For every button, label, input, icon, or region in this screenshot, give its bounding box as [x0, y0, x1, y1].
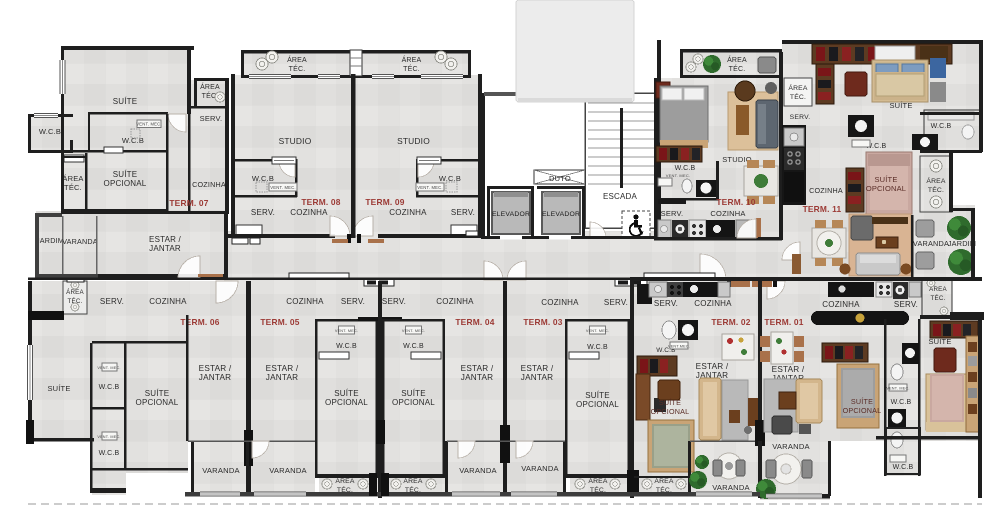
svg-text:SUÍTE: SUÍTE — [145, 389, 170, 398]
svg-text:ESTAR /: ESTAR / — [461, 364, 494, 373]
svg-text:SERV.: SERV. — [661, 209, 684, 218]
svg-text:VENT. MEC.: VENT. MEC. — [335, 329, 358, 333]
svg-text:W.C.B: W.C.B — [336, 343, 357, 350]
svg-text:W.C.B: W.C.B — [99, 384, 120, 391]
svg-text:DUTO: DUTO — [549, 174, 571, 183]
svg-text:VENT. MEC.: VENT. MEC. — [586, 329, 609, 333]
svg-text:TERM. 08: TERM. 08 — [301, 197, 340, 207]
svg-text:OPCIONAL: OPCIONAL — [104, 179, 147, 188]
svg-text:VENT. MEC.: VENT. MEC. — [402, 329, 425, 333]
svg-text:W.C.B: W.C.B — [99, 450, 120, 457]
svg-text:VENT. MEC.: VENT. MEC. — [97, 366, 120, 370]
svg-text:VARANDA: VARANDA — [772, 442, 810, 451]
svg-text:JANTAR: JANTAR — [521, 373, 553, 382]
svg-text:VARANDA: VARANDA — [269, 466, 307, 475]
svg-text:COZINHA: COZINHA — [694, 299, 732, 308]
svg-text:STUDIO: STUDIO — [279, 136, 312, 146]
svg-text:W.C.B: W.C.B — [931, 123, 952, 130]
svg-text:TERM. 02: TERM. 02 — [711, 317, 750, 327]
svg-text:OPCIONAL: OPCIONAL — [576, 400, 619, 409]
svg-text:ÁREA: ÁREA — [788, 83, 808, 92]
svg-text:TÉC.: TÉC. — [64, 183, 82, 192]
svg-text:TÉC.: TÉC. — [790, 92, 806, 101]
svg-text:ÁREA: ÁREA — [62, 174, 83, 183]
svg-text:COZINHA: COZINHA — [541, 298, 579, 307]
svg-text:ÁREA: ÁREA — [727, 55, 747, 64]
svg-text:COZINHA: COZINHA — [822, 300, 860, 309]
svg-text:ESTAR /: ESTAR / — [521, 364, 554, 373]
svg-text:OPCIONAL: OPCIONAL — [866, 184, 906, 193]
svg-text:ESTAR /: ESTAR / — [199, 364, 232, 373]
svg-text:TÉC.: TÉC. — [729, 64, 746, 73]
svg-text:TERM. 07: TERM. 07 — [169, 198, 208, 208]
svg-text:SUÍTE: SUÍTE — [113, 170, 138, 179]
svg-text:COZINHA: COZINHA — [149, 297, 187, 306]
svg-text:ÁREA: ÁREA — [926, 176, 946, 185]
svg-text:VENT. MEC.: VENT. MEC. — [270, 185, 296, 190]
svg-text:SERV.: SERV. — [382, 297, 406, 306]
svg-text:ÁREA: ÁREA — [402, 55, 422, 64]
svg-text:JANTAR: JANTAR — [461, 373, 493, 382]
svg-text:SERV.: SERV. — [451, 208, 475, 217]
svg-text:SERV.: SERV. — [341, 297, 365, 306]
svg-text:COZINHA: COZINHA — [389, 208, 427, 217]
svg-text:OPCIONAL: OPCIONAL — [843, 406, 882, 415]
svg-text:OPCIONAL: OPCIONAL — [651, 407, 690, 416]
svg-text:ÁREA: ÁREA — [200, 82, 220, 91]
svg-text:SUÍTE: SUÍTE — [659, 398, 681, 407]
svg-text:ELEVADOR: ELEVADOR — [492, 211, 530, 218]
svg-text:OPCIONAL: OPCIONAL — [325, 398, 368, 407]
svg-text:SUÍTE: SUÍTE — [47, 384, 70, 393]
svg-text:JARDIM: JARDIM — [36, 236, 64, 245]
svg-text:VENT. MEC.: VENT. MEC. — [136, 122, 162, 127]
svg-text:VARANDA: VARANDA — [712, 483, 750, 492]
svg-text:ESCADA: ESCADA — [603, 192, 638, 201]
svg-text:VARANDA: VARANDA — [202, 466, 240, 475]
svg-text:COZINHA: COZINHA — [710, 209, 745, 218]
svg-text:TERM. 05: TERM. 05 — [260, 317, 299, 327]
svg-text:TERM. 03: TERM. 03 — [523, 317, 562, 327]
svg-text:SERV.: SERV. — [654, 299, 678, 308]
svg-text:SERV.: SERV. — [604, 298, 628, 307]
svg-text:TERM. 01: TERM. 01 — [764, 317, 803, 327]
svg-text:JANTAR: JANTAR — [199, 373, 231, 382]
svg-text:VARANDA: VARANDA — [521, 464, 559, 473]
svg-text:OPCIONAL: OPCIONAL — [136, 398, 179, 407]
svg-text:STUDIO: STUDIO — [397, 136, 430, 146]
svg-text:SUÍTE: SUÍTE — [851, 397, 873, 406]
svg-text:TÉC.: TÉC. — [928, 185, 944, 194]
svg-text:W.C.B: W.C.B — [252, 174, 274, 183]
svg-text:ESTAR /: ESTAR / — [149, 235, 182, 244]
svg-text:TÉC.: TÉC. — [403, 64, 420, 73]
svg-text:COZINHA: COZINHA — [286, 297, 324, 306]
svg-text:W.C.B: W.C.B — [891, 399, 912, 406]
svg-text:VENT. MEC.: VENT. MEC. — [417, 185, 443, 190]
svg-text:ELEVADOR: ELEVADOR — [542, 211, 580, 218]
svg-text:W.C.B: W.C.B — [403, 343, 424, 350]
svg-text:W.C.B: W.C.B — [893, 464, 914, 471]
svg-text:SUÍTE: SUÍTE — [874, 175, 897, 184]
svg-text:COZINHA: COZINHA — [290, 208, 328, 217]
svg-text:VARANDA: VARANDA — [459, 466, 497, 475]
svg-text:SERV.: SERV. — [894, 300, 918, 309]
svg-text:TÉC.: TÉC. — [289, 64, 306, 73]
svg-text:TERM. 10: TERM. 10 — [716, 197, 755, 207]
svg-text:W.C.B: W.C.B — [675, 165, 696, 172]
svg-text:W.C.B: W.C.B — [122, 136, 144, 145]
svg-text:ESTAR /: ESTAR / — [696, 362, 729, 371]
svg-text:COZINHA: COZINHA — [436, 297, 474, 306]
svg-text:SERV.: SERV. — [100, 297, 124, 306]
svg-text:SERV.: SERV. — [790, 114, 811, 121]
svg-text:SERV.: SERV. — [251, 208, 275, 217]
svg-text:VENT.MEC.: VENT.MEC. — [668, 345, 690, 349]
svg-text:JANTAR: JANTAR — [266, 373, 298, 382]
svg-text:COZINHA: COZINHA — [192, 180, 226, 189]
svg-text:JANTAR: JANTAR — [149, 244, 181, 253]
svg-text:OPCIONAL: OPCIONAL — [392, 398, 435, 407]
svg-text:SUÍTE: SUÍTE — [334, 389, 359, 398]
svg-text:ÁREA: ÁREA — [287, 55, 307, 64]
svg-text:SUÍTE: SUÍTE — [585, 391, 610, 400]
svg-text:TERM. 11: TERM. 11 — [803, 204, 842, 214]
svg-text:VENT. MEC.: VENT. MEC. — [886, 387, 909, 391]
svg-text:VENT. MEC.: VENT. MEC. — [97, 435, 120, 439]
svg-text:SUÍTE: SUÍTE — [889, 101, 912, 110]
svg-text:W.C.B: W.C.B — [39, 127, 61, 136]
svg-text:SUÍTE: SUÍTE — [401, 389, 426, 398]
svg-text:TÉC.: TÉC. — [931, 295, 946, 302]
svg-text:W.C.B: W.C.B — [587, 344, 608, 351]
svg-text:COZINHA: COZINHA — [809, 186, 843, 195]
svg-text:VARANDA: VARANDA — [62, 237, 98, 246]
svg-text:SERV.: SERV. — [200, 114, 223, 123]
svg-text:TERM. 04: TERM. 04 — [455, 317, 494, 327]
svg-text:ESTAR /: ESTAR / — [266, 364, 299, 373]
svg-text:ÁREA: ÁREA — [66, 289, 84, 296]
svg-text:TERM. 09: TERM. 09 — [365, 197, 404, 207]
svg-text:VENT. MEC.: VENT. MEC. — [666, 173, 690, 178]
svg-text:ESTAR /: ESTAR / — [772, 365, 805, 374]
svg-text:VARANDA: VARANDA — [913, 239, 949, 248]
svg-text:SUÍTE: SUÍTE — [113, 97, 138, 106]
